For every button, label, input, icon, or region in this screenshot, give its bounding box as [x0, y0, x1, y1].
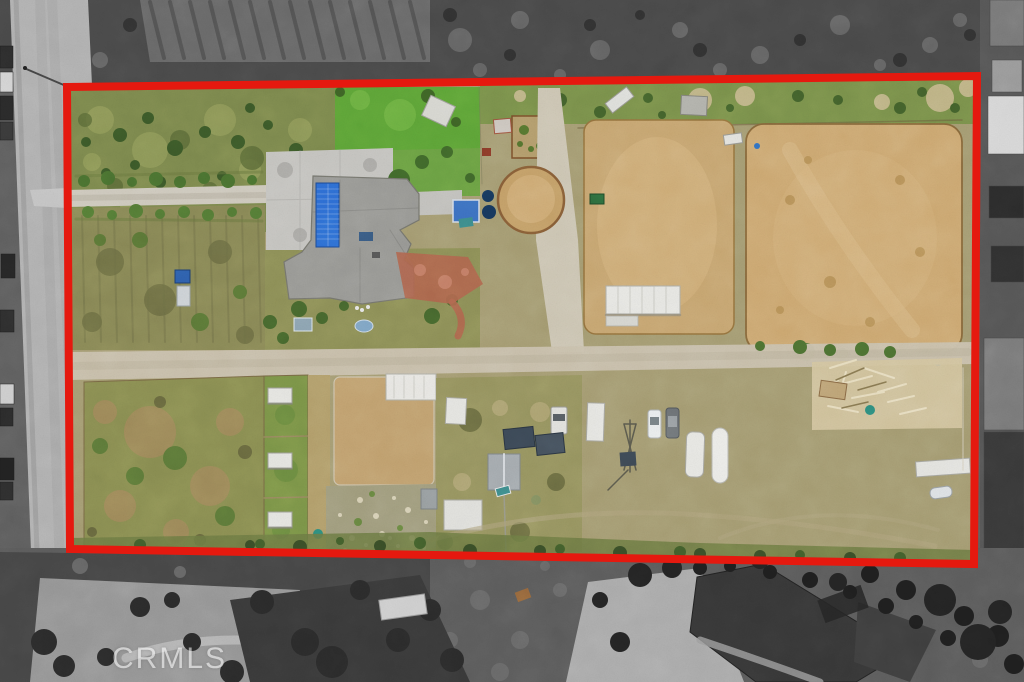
road-trees-dot — [793, 340, 807, 354]
pasture-sw-green-dot — [126, 467, 144, 485]
arena-east-spots-dot — [915, 247, 925, 257]
crop-brown-patches-dot — [144, 284, 176, 316]
arena-east-spots-dot — [895, 175, 905, 185]
crop-brown-patches-dot — [82, 312, 102, 332]
paddock-grass-dot — [275, 405, 295, 425]
driveway-trees-south-dot — [107, 210, 117, 220]
top-field-dark-mottle-dot — [794, 34, 806, 46]
driveway-trees-north-dot — [247, 175, 257, 185]
small-shed — [493, 118, 511, 133]
neighbor-trees-dot — [960, 624, 996, 660]
arena-east-spots-dot — [776, 306, 784, 314]
backyard-trees-dot — [263, 315, 277, 329]
pad-stains-dot — [293, 228, 307, 242]
utility-pole-dot — [23, 66, 27, 70]
top-field-dark-mottle-dot — [584, 19, 596, 31]
east-buildings-item — [989, 186, 1024, 218]
neighbor-hedges-dot — [861, 565, 879, 583]
neighbor-hedges-dot — [878, 598, 894, 614]
east-buildings-item — [984, 338, 1024, 430]
park-trees-dot — [440, 648, 464, 672]
white-truck-cab — [553, 414, 565, 421]
aerial-scene-canvas — [0, 0, 1024, 682]
parked-cars-item — [0, 122, 13, 140]
crop-brown-patches-dot — [96, 248, 124, 276]
pad-stains-dot — [363, 158, 377, 172]
red-implement — [482, 148, 491, 156]
pasture-nw-light-dot — [288, 118, 312, 142]
arena-east-spots-dot — [785, 195, 795, 205]
north-strip-bushes-dot — [726, 104, 734, 112]
top-field-light-mottle-dot — [448, 28, 472, 52]
neighbor-trees-dot — [988, 600, 1012, 624]
side-yard-trees-dot — [415, 155, 429, 169]
driveway-hedges-seg — [76, 219, 262, 221]
park-trees-dot — [130, 597, 150, 617]
north-strip-bushes-dot — [917, 87, 927, 97]
brick-patio-light-dot — [414, 264, 426, 276]
park-trees-dot — [386, 628, 410, 652]
driveway-trees-north-dot — [101, 171, 115, 185]
arena-east-spots-dot — [824, 276, 836, 288]
driveway-entry — [30, 188, 67, 208]
backyard-shed — [294, 318, 312, 331]
front-lawn-trees-dot — [335, 87, 345, 97]
road-trees-dot — [884, 346, 896, 358]
backyard-trees-dot — [339, 301, 349, 311]
pasture-sw-scrub-dot — [238, 445, 252, 459]
driveway-trees-south-dot — [202, 209, 214, 221]
patio-furniture-dot — [355, 306, 359, 310]
garden-bushes-dot — [528, 146, 534, 152]
parked-cars-item — [0, 458, 14, 480]
water-tanks-dot — [482, 205, 496, 219]
paddock-dividers-seg — [264, 497, 308, 498]
long-container — [586, 403, 604, 442]
pasture-sw-scrub-dot — [154, 396, 166, 408]
top-field-dark-mottle-dot — [123, 18, 137, 32]
crop-brown-patches-dot — [208, 240, 232, 264]
pasture-nw-trees-dot — [245, 103, 255, 113]
south-bushes-dot — [336, 537, 344, 545]
neighbor-trees-dot — [592, 592, 608, 608]
north-strip-bushes-dot — [643, 93, 653, 103]
top-field-dark-mottle-dot — [443, 8, 457, 22]
work-yard-light-dot — [492, 400, 508, 416]
north-strip-sand-dot — [735, 86, 755, 106]
side-yard-trees-dot — [441, 146, 453, 158]
parked-cars-item — [0, 384, 14, 404]
arena-east-spots-dot — [804, 156, 812, 164]
crop-brown-patches-dot — [236, 326, 254, 344]
driveway-trees-north-dot — [221, 174, 235, 188]
rocky-green-dot — [397, 525, 403, 531]
pasture-sw-scrub-dot — [87, 527, 97, 537]
pasture-sw-brown-dot — [216, 408, 244, 436]
rocks-dot — [405, 507, 411, 513]
crop-green-patches-dot — [191, 313, 209, 331]
white-gate — [723, 133, 742, 145]
top-field-light-mottle-dot — [511, 11, 529, 29]
work-yard-light-dot — [453, 473, 471, 491]
top-field-light-mottle-dot — [751, 46, 769, 64]
parked-cars-item — [0, 310, 14, 332]
top-field-light-mottle-dot — [953, 13, 967, 27]
east-buildings-item — [988, 96, 1024, 154]
park-trees-dot — [164, 592, 180, 608]
neighbor-hedges-dot — [1004, 654, 1024, 674]
north-strip-sand-dot — [874, 94, 890, 110]
top-field-light-mottle-dot — [92, 52, 108, 68]
north-strip-sand-dot — [514, 90, 526, 102]
parked-cars-item — [0, 482, 13, 500]
bottom-light-mottle-dot — [470, 590, 490, 610]
teal-debris — [865, 405, 875, 415]
work-yard-light-dot — [530, 402, 550, 422]
work-yard-dark-dot — [547, 473, 565, 491]
top-field-light-mottle-dot — [473, 63, 487, 77]
kiddie-pool — [355, 320, 373, 332]
shelter-row-ext — [606, 316, 638, 326]
backyard-trees-dot — [424, 308, 440, 324]
front-lawn-light-dot — [384, 99, 416, 131]
white-shed-south — [444, 500, 482, 530]
parked-cars-item — [0, 72, 13, 92]
flatbed-trailer — [916, 458, 971, 477]
driveway-wear — [70, 195, 265, 198]
park-trees-dot — [291, 628, 319, 656]
front-lawn-trees-dot — [451, 117, 461, 127]
arena-east-spots-dot — [865, 317, 875, 327]
bottom-light-mottle-dot — [174, 566, 186, 578]
airstream-rv — [712, 428, 728, 483]
water-tanks-dot — [482, 190, 494, 202]
neighbor-trees-dot — [924, 584, 956, 616]
north-strip-bushes-dot — [792, 90, 804, 102]
garden-bushes-dot — [519, 125, 529, 135]
ground-panels-item — [503, 426, 535, 449]
paddock-dividers-seg — [264, 436, 308, 437]
pasture-sw-brown-dot — [93, 400, 117, 424]
pasture-sw-green-dot — [215, 506, 235, 526]
brick-patio-light-dot — [461, 268, 469, 276]
bottom-light-mottle-dot — [553, 583, 567, 597]
pasture-nw-trees-dot — [199, 126, 211, 138]
brick-patio-light-dot — [438, 275, 452, 289]
top-field-dark-mottle-dot — [893, 53, 907, 67]
bottom-light-mottle-dot — [72, 558, 88, 574]
north-strip-bushes-dot — [658, 111, 666, 119]
run-in-shelters-item — [268, 388, 292, 403]
small-gray-shed — [421, 489, 437, 509]
driveway-trees-north-dot — [78, 175, 90, 187]
teal-debris-dot — [865, 405, 875, 415]
rocky-green-dot — [354, 518, 362, 526]
pasture-nw-trees-dot — [130, 160, 140, 170]
top-field-light-mottle-dot — [874, 59, 886, 71]
patio-furniture-dot — [366, 305, 370, 309]
neighbor-trees-dot — [610, 632, 630, 652]
green-equipment — [590, 194, 604, 204]
rocks-dot — [357, 497, 363, 503]
crop-green-patches-dot — [94, 234, 106, 246]
driveway-trees-north-dot — [149, 172, 163, 186]
road-trees-dot — [755, 341, 765, 351]
driveway-trees-north-dot — [174, 176, 186, 188]
patio-furniture-dot — [360, 308, 364, 312]
roof-vent — [372, 252, 380, 258]
top-field-light-mottle-dot — [922, 37, 938, 53]
aerial-photo-horse-property: CRMLS — [0, 0, 1024, 682]
neighbor-hedges-dot — [909, 615, 923, 629]
pasture-nw-trees-dot — [142, 112, 154, 124]
color-property-interior — [67, 76, 977, 564]
neighbor-hedges-dot — [954, 606, 974, 626]
white-car-glass — [650, 417, 659, 425]
south-bushes-dot — [555, 544, 565, 554]
carport-shelter — [681, 95, 708, 115]
backyard-trees-dot — [316, 312, 328, 324]
blue-barrels-dot — [754, 143, 760, 149]
top-field-light-mottle-dot — [713, 63, 727, 77]
tractor-trailer — [177, 286, 190, 306]
park-trees-dot — [250, 590, 274, 614]
run-in-shelters-item — [268, 453, 292, 468]
tall-shed — [445, 397, 466, 424]
rocks-dot — [424, 520, 428, 524]
rocks-dot — [392, 496, 396, 500]
dark-panel-small — [620, 451, 637, 466]
east-buildings-item — [992, 60, 1022, 92]
north-strip-bushes-dot — [894, 102, 906, 114]
pasture-nw-trees-dot — [81, 137, 91, 147]
pasture-nw-trees-dot — [231, 135, 245, 149]
driveway-trees-north-dot — [127, 177, 137, 187]
wood-pile — [819, 380, 847, 399]
pasture-sw-green-dot — [163, 446, 187, 470]
horse-shelter-row — [606, 286, 680, 314]
north-strip-bushes-dot — [594, 106, 606, 118]
parked-cars-item — [0, 46, 13, 68]
gray-car-roof — [668, 416, 677, 427]
neighbor-hedges-dot — [802, 572, 818, 588]
road-trees-dot — [824, 344, 836, 356]
rocky-green-dot — [369, 491, 375, 497]
blue-tractor — [175, 270, 190, 283]
camper-trailer — [685, 432, 705, 478]
top-field-light-mottle-dot — [830, 15, 850, 35]
utility-pole — [23, 66, 27, 70]
driveway-trees-south-dot — [227, 207, 237, 217]
park-trees-dot — [53, 655, 75, 677]
top-field-dark-mottle-dot — [635, 10, 645, 20]
crop-green-patches-dot — [132, 232, 148, 248]
bottom-light-mottle-dot — [491, 663, 509, 681]
road-trees-dot — [855, 342, 869, 356]
side-yard-trees-dot — [465, 173, 475, 183]
pasture-sw-brown-dot — [190, 466, 230, 506]
north-strip-bushes-dot — [833, 95, 843, 105]
solar-panel-array — [316, 183, 339, 247]
bottom-light-mottle-dot — [511, 631, 529, 649]
pasture-nw-trees-dot — [167, 140, 183, 156]
neighbor-trees-dot — [829, 573, 847, 591]
driveway-trees-south-dot — [129, 204, 143, 218]
park-trees-dot — [350, 580, 370, 600]
pasture-sw-brown-dot — [104, 490, 136, 522]
south-bushes-dot — [414, 537, 426, 549]
park-trees-dot — [31, 629, 57, 655]
top-field-dark-mottle-dot — [504, 49, 516, 61]
pasture-nw-trees-dot — [113, 128, 127, 142]
front-lawn-light-dot — [350, 90, 370, 110]
park-trees-dot — [316, 646, 348, 678]
round-pen-inner — [507, 175, 555, 223]
top-field-dark-mottle-dot — [964, 29, 976, 41]
east-buildings-item — [991, 246, 1024, 282]
solar-panel-small — [359, 232, 373, 241]
crmls-watermark: CRMLS — [112, 642, 227, 676]
pasture-sw-green-dot — [92, 438, 108, 454]
east-buildings-item — [990, 0, 1024, 46]
top-field-dark-mottle-dot — [693, 43, 707, 57]
pad-stains-dot — [277, 162, 293, 178]
neighbor-hedges-dot — [896, 580, 916, 600]
driveway-trees-north-dot — [198, 172, 210, 184]
driveway-trees-south-dot — [82, 206, 94, 218]
top-field-light-mottle-dot — [672, 22, 688, 38]
top-field-light-mottle-dot — [590, 40, 610, 60]
pasture-nw-dark-dot — [78, 113, 92, 127]
parked-cars-item — [1, 254, 15, 278]
pasture-nw-light-dot — [83, 153, 101, 171]
parked-cars-item — [0, 96, 13, 120]
driveway-trees-south-dot — [155, 209, 165, 219]
rocks-dot — [338, 513, 342, 517]
north-strip-sand-dot — [926, 84, 954, 112]
pasture-nw-dark-dot — [240, 146, 264, 170]
rocks-dot — [373, 513, 379, 519]
north-strip-bushes-dot — [950, 103, 960, 113]
driveway-trees-south-dot — [178, 206, 190, 218]
backyard-trees-dot — [291, 301, 307, 317]
crop-green-patches-dot — [233, 285, 247, 299]
pasture-nw-trees-dot — [263, 120, 273, 130]
garden-bushes-dot — [517, 141, 523, 147]
neighbor-trees-dot — [628, 563, 652, 587]
run-in-shelters-item — [268, 512, 292, 527]
south-bushes-dot — [255, 539, 265, 549]
driveway-trees-south-dot — [250, 207, 262, 219]
ground-panels-item — [535, 433, 565, 456]
backyard-trees-dot — [277, 332, 289, 344]
neighbor-hedges-dot — [940, 630, 956, 646]
bottom-light-mottle-dot — [540, 561, 550, 571]
parked-cars-item — [0, 408, 13, 426]
